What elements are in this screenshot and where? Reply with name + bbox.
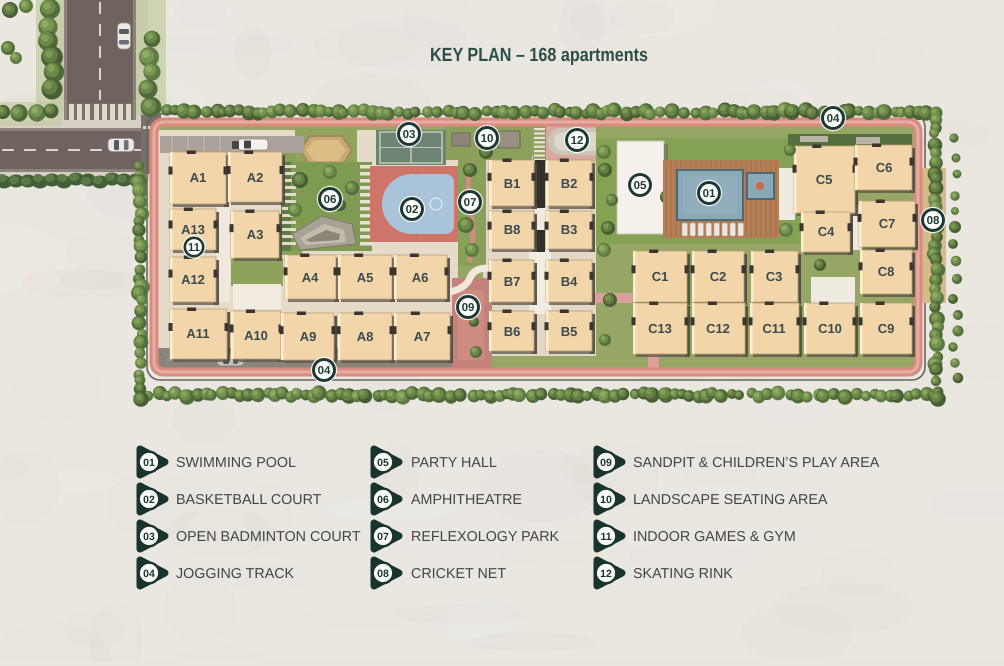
svg-text:A11: A11	[186, 326, 209, 341]
svg-text:09: 09	[600, 457, 612, 469]
svg-text:04: 04	[827, 113, 840, 125]
svg-text:12: 12	[600, 568, 612, 580]
svg-text:A2: A2	[247, 170, 264, 185]
svg-text:11: 11	[188, 242, 201, 254]
svg-text:A5: A5	[357, 270, 374, 285]
svg-text:OPEN BADMINTON COURT: OPEN BADMINTON COURT	[176, 529, 361, 545]
svg-text:JOGGING TRACK: JOGGING TRACK	[176, 566, 295, 582]
svg-text:C7: C7	[879, 216, 896, 231]
svg-text:B1: B1	[504, 176, 521, 191]
svg-text:A3: A3	[247, 227, 264, 242]
svg-text:B7: B7	[504, 274, 521, 289]
svg-text:A4: A4	[302, 270, 319, 285]
svg-text:A12: A12	[181, 272, 205, 287]
svg-text:06: 06	[377, 494, 389, 506]
svg-text:B6: B6	[504, 324, 521, 339]
svg-text:REFLEXOLOGY PARK: REFLEXOLOGY PARK	[411, 529, 560, 545]
svg-text:C12: C12	[706, 321, 730, 336]
svg-text:B5: B5	[561, 324, 578, 339]
svg-text:04: 04	[143, 568, 155, 580]
svg-text:05: 05	[634, 180, 647, 192]
svg-text:B4: B4	[561, 274, 578, 289]
svg-text:C1: C1	[652, 269, 669, 284]
svg-text:SWIMMING POOL: SWIMMING POOL	[176, 455, 296, 471]
svg-text:C10: C10	[818, 321, 842, 336]
svg-text:11: 11	[600, 531, 611, 543]
svg-text:07: 07	[377, 531, 389, 543]
svg-text:CRICKET NET: CRICKET NET	[411, 566, 506, 582]
svg-text:SKATING RINK: SKATING RINK	[633, 566, 733, 582]
svg-text:KEY PLAN – 168 apartments: KEY PLAN – 168 apartments	[430, 45, 648, 66]
svg-text:04: 04	[318, 365, 331, 377]
svg-text:INDOOR GAMES & GYM: INDOOR GAMES & GYM	[633, 529, 796, 545]
svg-text:A1: A1	[190, 170, 207, 185]
svg-text:12: 12	[571, 135, 584, 147]
svg-text:C2: C2	[710, 269, 727, 284]
svg-text:A10: A10	[244, 328, 268, 343]
svg-text:01: 01	[143, 457, 155, 469]
svg-text:C4: C4	[818, 224, 835, 239]
svg-text:PARTY HALL: PARTY HALL	[411, 455, 497, 471]
svg-text:05: 05	[377, 457, 389, 469]
svg-text:SANDPIT & CHILDREN’S PLAY AREA: SANDPIT & CHILDREN’S PLAY AREA	[633, 455, 880, 471]
svg-text:08: 08	[927, 215, 940, 227]
svg-text:10: 10	[481, 133, 494, 145]
svg-text:C3: C3	[766, 269, 783, 284]
svg-text:06: 06	[324, 194, 337, 206]
svg-text:BASKETBALL COURT: BASKETBALL COURT	[176, 492, 322, 508]
svg-text:A6: A6	[412, 270, 429, 285]
svg-text:02: 02	[143, 494, 155, 506]
svg-text:C9: C9	[878, 321, 895, 336]
svg-text:LANDSCAPE SEATING AREA: LANDSCAPE SEATING AREA	[633, 492, 828, 508]
svg-text:B2: B2	[561, 176, 578, 191]
svg-text:B8: B8	[504, 222, 521, 237]
svg-text:01: 01	[703, 188, 716, 200]
svg-text:03: 03	[143, 531, 155, 543]
svg-text:A7: A7	[414, 329, 431, 344]
svg-text:C13: C13	[648, 321, 672, 336]
svg-text:09: 09	[462, 302, 475, 314]
svg-text:02: 02	[406, 204, 419, 216]
svg-text:08: 08	[377, 568, 389, 580]
svg-text:07: 07	[464, 197, 477, 209]
svg-text:A9: A9	[300, 329, 317, 344]
svg-text:A13: A13	[181, 222, 205, 237]
svg-text:B3: B3	[561, 222, 578, 237]
svg-text:C6: C6	[876, 160, 893, 175]
svg-text:10: 10	[600, 494, 612, 506]
svg-text:A8: A8	[357, 329, 374, 344]
svg-text:C5: C5	[816, 172, 833, 187]
svg-text:C11: C11	[762, 321, 785, 336]
svg-text:AMPHITHEATRE: AMPHITHEATRE	[411, 492, 522, 508]
svg-text:03: 03	[403, 129, 416, 141]
svg-text:C8: C8	[878, 264, 895, 279]
